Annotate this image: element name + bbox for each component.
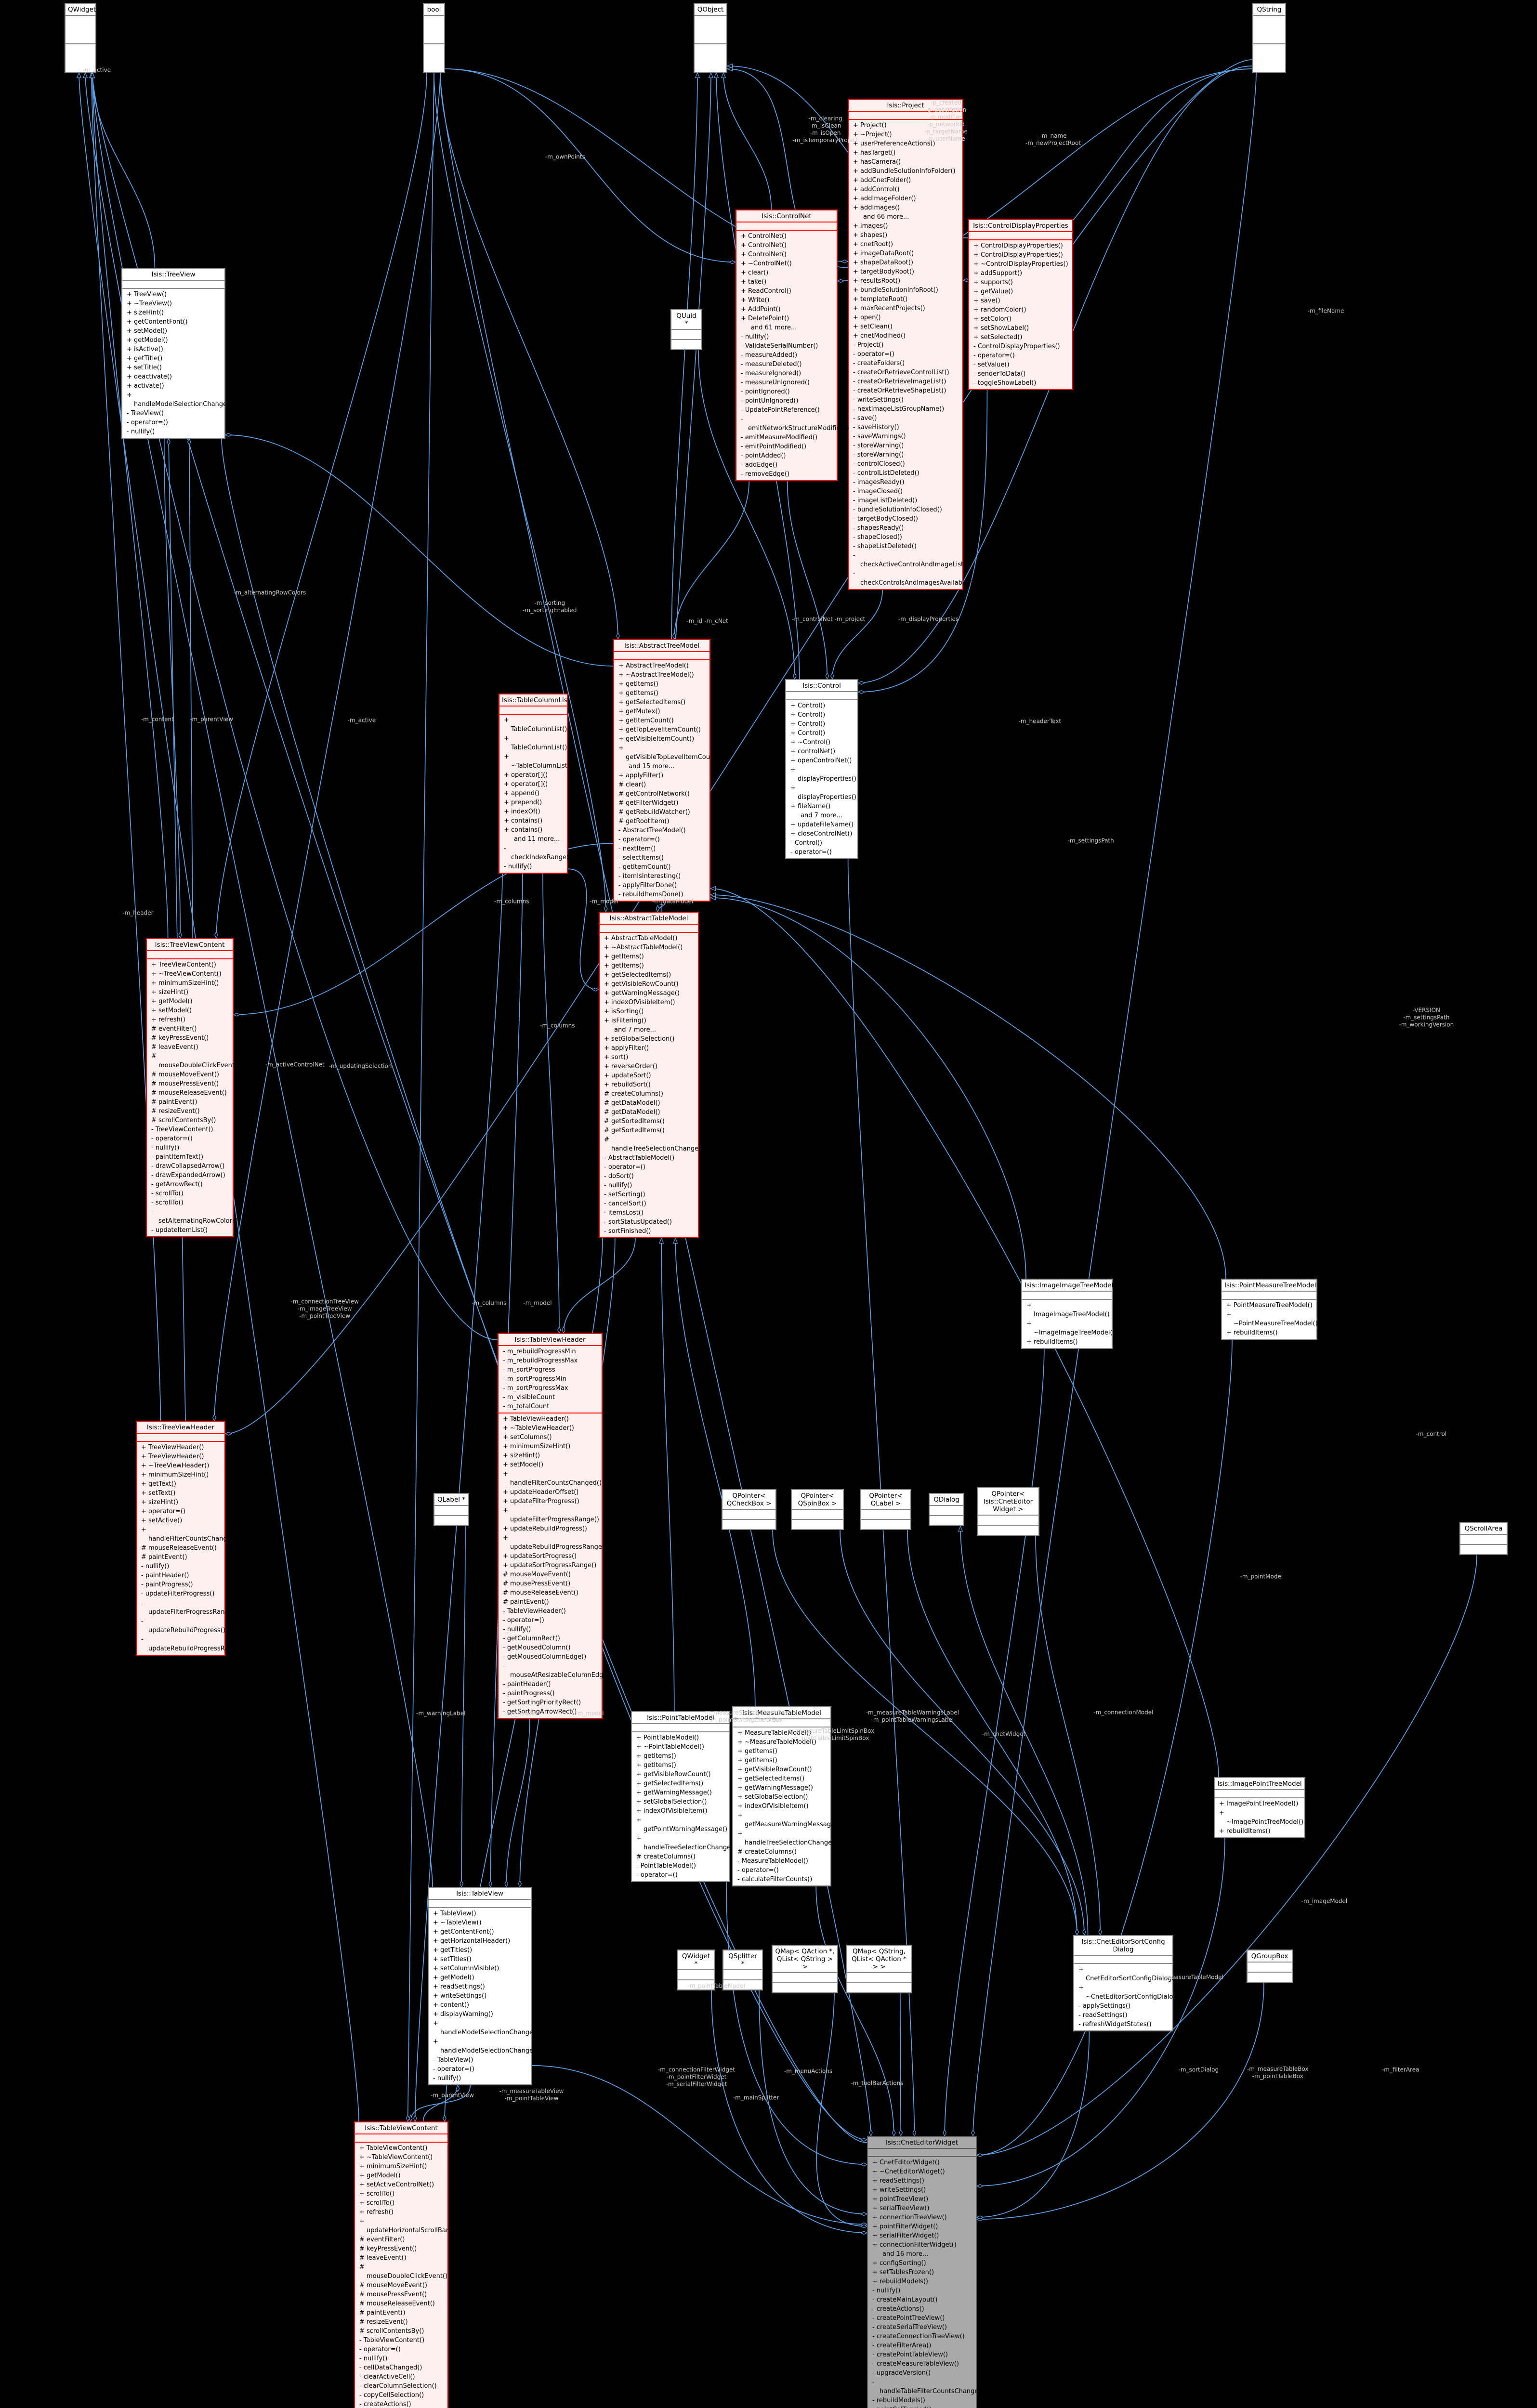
attributes-compartment	[736, 222, 837, 230]
methods-compartment: + Project()+ ~Project()+ userPreferenceA…	[849, 119, 962, 589]
member-row: - nullify()	[122, 427, 224, 436]
edge-label: -m_clearing-m_isClean-m_isOpen-m_isTempo…	[792, 115, 858, 144]
class-title: QDialog	[930, 1494, 963, 1505]
class-title: Isis::TableViewContent	[355, 2122, 447, 2133]
member-row: + bundleSolutionInfoRoot()	[849, 286, 962, 295]
member-row: + getItems()	[614, 680, 709, 689]
edge-label: -m_content	[141, 716, 174, 723]
member-row: # paintEvent()	[355, 2308, 447, 2317]
member-row: - createOrRetrieveShapeList()	[849, 386, 962, 395]
member-row: - operator=()	[733, 1866, 830, 1875]
member-edge	[945, 1349, 1044, 2136]
member-row: + cnetModified()	[849, 331, 962, 340]
member-row: - shapeClosed()	[849, 533, 962, 542]
attributes-compartment	[1248, 1962, 1292, 1972]
member-row: + ReadControl()	[736, 287, 837, 296]
attributes-compartment	[723, 1509, 775, 1519]
edge-label: -m_active	[348, 717, 376, 724]
member-row: # keyPressEvent()	[147, 1034, 233, 1043]
member-row: + addSupport()	[969, 269, 1072, 278]
edge-label: -m_warningLabel	[416, 1710, 465, 1717]
class-title: QString	[1253, 4, 1285, 15]
inheritance-edge	[710, 889, 1219, 1777]
methods-compartment: + TreeViewContent()+ ~TreeViewContent()+…	[147, 958, 233, 1236]
member-row: + setText()	[137, 1489, 224, 1498]
edge-label: -m_mainSplitter	[733, 2094, 779, 2102]
member-row: - checkIndexRange()	[499, 844, 567, 862]
uml-collaboration-diagram: QWidgetboolQObjectQStringIsis::Project+ …	[0, 0, 1537, 2408]
attributes-compartment	[695, 15, 726, 43]
member-row: + AddPoint()	[736, 305, 837, 314]
member-edge	[189, 439, 193, 938]
class-box-qplabel[interactable]: QPointer< QLabel >	[860, 1489, 911, 1530]
member-row: + updateHeaderOffset()	[499, 1488, 602, 1497]
member-row: - pointUnIgnored()	[736, 396, 837, 406]
member-row: - emitMeasureModified()	[736, 433, 837, 442]
attributes-compartment	[1460, 1534, 1507, 1544]
member-row: - setAlternatingRowColors()	[147, 1207, 233, 1226]
member-row: - applyFilterDone()	[614, 881, 709, 890]
member-row: + open()	[849, 313, 962, 322]
member-row: - updateItemList()	[147, 1226, 233, 1235]
member-row: - itemIsInteresting()	[614, 872, 709, 881]
member-row: and 66 more...	[849, 212, 962, 222]
member-row: - nullify()	[355, 2354, 447, 2363]
member-row: - writeSettings()	[849, 395, 962, 405]
member-row: + addBundleSolutionInfoFolder()	[849, 167, 962, 176]
member-row: + TableViewContent()	[355, 2144, 447, 2153]
member-row: + ~AbstractTreeModel()	[614, 670, 709, 680]
class-title: bool	[424, 4, 444, 15]
member-row: + getWarningMessage()	[733, 1783, 830, 1793]
edge-label: -m_dataModel	[652, 898, 693, 905]
methods-compartment	[434, 1515, 468, 1525]
member-row: # resizeEvent()	[355, 2317, 447, 2327]
member-row: - operator=()	[429, 2065, 531, 2074]
member-row: + handleTreeSelectionChanged()	[632, 1834, 729, 1852]
member-row: + ~PointMeasureTreeModel()	[1222, 1310, 1316, 1328]
member-row: - nullify()	[868, 2286, 976, 2295]
member-row: + activate()	[122, 381, 224, 391]
class-title: QGroupBox	[1248, 1950, 1292, 1962]
class-title: Isis::AbstractTableModel	[600, 913, 698, 924]
member-row: # mousePressEvent()	[499, 1579, 602, 1588]
class-box-abstracttablemodel[interactable]: Isis::AbstractTableModel+ AbstractTableM…	[599, 912, 699, 1238]
member-row: + readSettings()	[429, 1982, 531, 1991]
member-row: + ~AbstractTableModel()	[600, 943, 698, 952]
attributes-compartment	[122, 280, 224, 288]
member-row: + connectionTreeView()	[868, 2213, 976, 2222]
class-box-treeviewcontent[interactable]: Isis::TreeViewContent+ TreeViewContent()…	[146, 938, 234, 1237]
member-row: # createColumns()	[632, 1852, 729, 1861]
member-row: + ~TreeViewContent()	[147, 969, 233, 979]
class-box-qpspinbox[interactable]: QPointer< QSpinBox >	[791, 1489, 844, 1530]
member-row: + connectionFilterWidget()	[868, 2240, 976, 2250]
inheritance-edge	[92, 73, 155, 268]
class-box-qdialog[interactable]: QDialog	[929, 1493, 964, 1526]
member-row: - storeWarning()	[849, 450, 962, 459]
member-row: + setActiveControlNet()	[355, 2180, 447, 2189]
attributes-compartment	[773, 1972, 837, 1982]
member-row: # eventFilter()	[355, 2235, 447, 2244]
member-row: + CnetEditorWidget()	[868, 2158, 976, 2167]
class-title: Isis::CnetEditorWidget	[868, 2137, 976, 2148]
edge-label: -m_columns	[494, 898, 529, 905]
member-row: + getItemCount()	[614, 716, 709, 725]
member-row: + getModel()	[147, 997, 233, 1006]
member-row: + rebuildItems()	[1022, 1337, 1112, 1347]
member-row: + rebuildModels()	[868, 2277, 976, 2286]
member-row: - shapesReady()	[849, 523, 962, 533]
member-row: + sizeHint()	[122, 308, 224, 317]
member-row: + getSelectedItems()	[733, 1774, 830, 1783]
class-box-pointmeasuretreemodel[interactable]: Isis::PointMeasureTreeModel+ PointMeasur…	[1221, 1279, 1317, 1340]
member-row: + AbstractTreeModel()	[614, 661, 709, 670]
member-row: + rebuildItems()	[1222, 1328, 1316, 1337]
class-box-tableview[interactable]: Isis::TableView+ TableView()+ ~TableView…	[428, 1887, 532, 2085]
edge-label: -m_measureTableView-m_pointTableView	[499, 2088, 564, 2102]
member-row: + ~ImagePointTreeModel()	[1215, 1808, 1304, 1827]
class-title: Isis::Control	[786, 680, 857, 691]
member-row: - Control()	[786, 838, 857, 848]
edge-label: -VERSION-m_settingsPath-m_workingVersion	[1399, 1007, 1454, 1029]
class-title: QScrollArea	[1460, 1523, 1507, 1534]
class-title: QPointer< QCheckBox >	[723, 1490, 775, 1509]
member-edge	[977, 1555, 1477, 2155]
class-box-quuid[interactable]: QUuid *	[670, 309, 702, 350]
member-row: + setModel()	[122, 327, 224, 336]
member-row: + readSettings()	[868, 2176, 976, 2186]
class-box-bool[interactable]: bool	[423, 3, 445, 73]
methods-compartment	[723, 1519, 775, 1529]
member-row: # clear()	[614, 780, 709, 789]
class-box-controlnet[interactable]: Isis::ControlNet+ ControlNet()+ ControlN…	[736, 209, 838, 481]
member-row: - controlListDeleted()	[849, 469, 962, 478]
class-title: QUuid *	[671, 310, 701, 329]
edge-label: -m_model	[523, 1300, 552, 1307]
edge-label: -m_displayProperties	[898, 616, 959, 623]
member-row: # paintEvent()	[499, 1597, 602, 1607]
methods-compartment	[424, 43, 444, 72]
member-row: + Control()	[786, 729, 857, 738]
member-row: - scrollTo()	[147, 1198, 233, 1207]
member-row: # getDataModel()	[600, 1099, 698, 1108]
attributes-compartment	[1215, 1789, 1304, 1797]
class-box-imagepointtreemodel[interactable]: Isis::ImagePointTreeModel+ ImagePointTre…	[1214, 1777, 1305, 1838]
member-row: - rebuildModels()	[868, 2396, 976, 2405]
member-row: - createOrRetrieveImageList()	[849, 377, 962, 386]
member-row: and 16 more...	[868, 2250, 976, 2259]
methods-compartment	[847, 1982, 911, 1992]
member-row: + imageDataRoot()	[849, 249, 962, 258]
member-row: + displayProperties()	[786, 784, 857, 802]
member-row: - pointAdded()	[736, 451, 837, 460]
attribute-row: - m_totalCount	[499, 1402, 602, 1411]
methods-compartment: + MeasureTableModel()+ ~MeasureTableMode…	[733, 1727, 830, 1885]
member-row: + setColumnVisible()	[429, 1964, 531, 1973]
class-box-qscrollarea[interactable]: QScrollArea	[1459, 1522, 1508, 1555]
methods-compartment: + TableViewHeader()+ ~TableViewHeader()+…	[499, 1413, 602, 1718]
edge-label: -m_parentView	[190, 716, 233, 723]
class-box-tablecolumnlist[interactable]: Isis::TableColumnList+ TableColumnList()…	[499, 694, 568, 874]
class-box-qmapstring[interactable]: QMap< QString, QList< QAction * > >	[846, 1945, 912, 1993]
class-title: Isis::ControlDisplayProperties	[969, 220, 1072, 231]
member-row: - itemsLost()	[600, 1208, 698, 1217]
member-row: - nullify()	[736, 332, 837, 341]
edge-label: -m_controlNet -m_project	[792, 616, 865, 623]
member-row: - createMeasureTableView()	[868, 2359, 976, 2369]
member-row: + getVisibleRowCount()	[632, 1770, 729, 1779]
member-row: # paintEvent()	[147, 1098, 233, 1107]
class-title: QWidget *	[678, 1950, 714, 1969]
member-row: + setSelected()	[969, 333, 1072, 342]
member-row: + rebuildItems()	[1215, 1827, 1304, 1836]
member-row: - nullify()	[147, 1143, 233, 1152]
edge-label: -m_connectionFilterWidget-m_pointFilterW…	[658, 2067, 735, 2088]
edge-label: -m_control	[1416, 1431, 1447, 1438]
attributes-compartment	[499, 706, 567, 714]
member-row: - createSerialTreeView()	[868, 2323, 976, 2332]
member-row: + updateHorizontalScrollBar()	[355, 2217, 447, 2235]
member-edge	[816, 1886, 894, 2136]
member-row: - shapeListDeleted()	[849, 542, 962, 551]
member-row: # resizeEvent()	[147, 1107, 233, 1116]
member-row: + isSorting()	[600, 1007, 698, 1016]
member-row: and 7 more...	[786, 811, 857, 820]
class-box-cdp[interactable]: Isis::ControlDisplayProperties+ ControlD…	[968, 219, 1073, 390]
inheritance-edge	[675, 1238, 755, 1706]
member-row: + minimumSizeHint()	[499, 1442, 602, 1451]
member-row: + setShowLabel()	[969, 324, 1072, 333]
class-box-qpcnet[interactable]: QPointer< Isis::CnetEditor Widget >	[977, 1487, 1039, 1536]
member-row: + minimumSizeHint()	[147, 979, 233, 988]
member-row: # getSortedItems()	[600, 1126, 698, 1135]
member-row: + getPointWarningMessage()	[632, 1816, 729, 1834]
member-row: + updateFilterProgress()	[499, 1497, 602, 1506]
member-row: + deactivate()	[122, 372, 224, 381]
member-row: + templateRoot()	[849, 295, 962, 304]
class-box-tableviewheader[interactable]: Isis::TableViewHeader- m_rebuildProgress…	[498, 1333, 603, 1719]
member-row: + AbstractTableModel()	[600, 934, 698, 943]
member-row: + pointFilterWidget()	[868, 2222, 976, 2231]
class-box-abstracttreemodel[interactable]: Isis::AbstractTreeModel+ AbstractTreeMod…	[613, 639, 710, 902]
member-row: + hasTarget()	[849, 148, 962, 157]
methods-compartment: + PointMeasureTreeModel()+ ~PointMeasure…	[1222, 1299, 1316, 1339]
member-row: - applySettings()	[1074, 2002, 1172, 2011]
class-title: Isis::ImageImageTreeModel	[1022, 1280, 1112, 1291]
member-row: + writeSettings()	[868, 2186, 976, 2195]
member-row: + refresh()	[147, 1015, 233, 1024]
member-row: - createPointTreeView()	[868, 2314, 976, 2323]
member-row: + openControlNet()	[786, 756, 857, 765]
member-row: # handleTreeSelectionChanged()	[600, 1135, 698, 1153]
edge-label: -m_active	[83, 67, 111, 74]
class-box-treeview[interactable]: Isis::TreeView+ TreeView()+ ~TreeView()+…	[121, 268, 225, 439]
member-row: - setValue()	[969, 360, 1072, 369]
member-row: - selectItems()	[614, 853, 709, 863]
member-row: - sortFinished()	[600, 1227, 698, 1236]
member-row: - getMousedColumnEdge()	[499, 1652, 602, 1662]
member-edge	[440, 73, 618, 639]
member-row: + contains()	[499, 825, 567, 835]
edge-label: -m_parentView	[431, 2092, 474, 2099]
edge-label: -m_name-m_newProjectRoot	[1025, 132, 1081, 147]
member-row: - operator=()	[849, 350, 962, 359]
member-row: + ~CnetEditorWidget()	[868, 2167, 976, 2176]
class-box-qmapaction[interactable]: QMap< QAction *, QList< QString > >	[772, 1945, 838, 1993]
member-row: + indexOfVisibleItem()	[632, 1806, 729, 1816]
member-row: + minimumSizeHint()	[137, 1470, 224, 1479]
edge-label: -m_toolBarActions	[851, 2080, 903, 2087]
edge-label: -m_header	[122, 910, 153, 917]
class-box-qpcheckbox[interactable]: QPointer< QCheckBox >	[722, 1489, 776, 1530]
member-row: + refresh()	[355, 2208, 447, 2217]
member-row: - clearActiveCell()	[355, 2372, 447, 2382]
class-box-qlabelptr[interactable]: QLabel *	[434, 1493, 469, 1526]
attributes-compartment	[1074, 1955, 1172, 1963]
class-box-qwidget[interactable]: QWidget	[65, 3, 96, 73]
member-row: + ControlNet()	[736, 232, 837, 241]
member-row: - pointColToggled()	[868, 2405, 976, 2408]
class-title: Isis::TableViewHeader	[499, 1334, 602, 1345]
member-row: + getTitle()	[122, 354, 224, 363]
inheritance-edge	[710, 898, 1026, 1279]
class-title: QPointer< QLabel >	[861, 1490, 910, 1509]
member-row: - createActions()	[868, 2304, 976, 2314]
member-row: - updateRebuildProgressRange()	[137, 1635, 224, 1653]
member-row: + indexOfVisibleItem()	[733, 1802, 830, 1811]
member-row: + ~TableColumnList()	[499, 752, 567, 771]
member-row: + updateRebuildProgressRange()	[499, 1533, 602, 1552]
member-row: - senderToData()	[969, 369, 1072, 379]
class-title: QWidget	[66, 4, 95, 15]
member-row: + handleModelSelectionChanged()	[122, 391, 224, 409]
member-row: + getModel()	[429, 1973, 531, 1982]
member-row: + take()	[736, 277, 837, 287]
member-row: # getControlNetwork()	[614, 789, 709, 798]
attributes-compartment	[868, 2148, 976, 2156]
member-row: and 15 more...	[614, 762, 709, 771]
class-box-qgroupbox[interactable]: QGroupBox	[1247, 1950, 1293, 1983]
member-edge	[711, 1990, 867, 2233]
member-row: - updateFilterProgress()	[137, 1589, 224, 1598]
member-row: - UpdatePointReference()	[736, 406, 837, 415]
member-row: + ControlNet()	[736, 241, 837, 250]
member-row: + prepend()	[499, 798, 567, 807]
methods-compartment: + ControlDisplayProperties()+ ControlDis…	[969, 239, 1072, 389]
member-row: + reverseOrder()	[600, 1062, 698, 1071]
member-row: + updateSortProgress()	[499, 1552, 602, 1561]
edge-label: -m_headerText	[1019, 718, 1062, 725]
inheritance-edge	[710, 895, 1226, 1279]
class-box-cneteditorwidget[interactable]: Isis::CnetEditorWidget+ CnetEditorWidget…	[867, 2136, 977, 2408]
class-box-project[interactable]: Isis::Project+ Project()+ ~Project()+ us…	[848, 99, 963, 590]
member-row: - getItemCount()	[614, 863, 709, 872]
inheritance-edge	[661, 1238, 674, 1711]
member-row: + getItems()	[600, 961, 698, 970]
member-row: + setGlobalSelection()	[600, 1034, 698, 1044]
member-row: + handleFilterCountsChanged()	[137, 1525, 224, 1544]
attributes-compartment	[930, 1505, 963, 1515]
methods-compartment: + Control()+ Control()+ Control()+ Contr…	[786, 699, 857, 858]
member-row: and 11 more...	[499, 835, 567, 844]
member-edge	[408, 73, 434, 2121]
member-row: - nullify()	[429, 2074, 531, 2083]
member-row: - cellDataChanged()	[355, 2363, 447, 2372]
member-row: - createOrRetrieveControlList()	[849, 368, 962, 377]
member-row: - nullify()	[600, 1181, 698, 1190]
attributes-compartment	[1022, 1291, 1112, 1299]
class-box-treeviewheader[interactable]: Isis::TreeViewHeader+ TreeViewHeader()+ …	[136, 1421, 225, 1656]
member-row: + shapes()	[849, 231, 962, 240]
member-row: - paintProgress()	[137, 1580, 224, 1589]
member-row: - AbstractTableModel()	[600, 1153, 698, 1163]
class-box-qstring[interactable]: QString	[1252, 3, 1286, 73]
member-edge	[214, 73, 440, 1421]
member-row: + setClean()	[849, 322, 962, 331]
member-edge	[411, 2085, 471, 2121]
member-row: - paintHeader()	[499, 1680, 602, 1689]
methods-compartment	[695, 43, 726, 72]
methods-compartment: + ImagePointTreeModel()+ ~ImagePointTree…	[1215, 1797, 1304, 1837]
member-row: - drawCollapsedArrow()	[147, 1162, 233, 1171]
attributes-compartment	[355, 2133, 447, 2142]
member-row: + ImagePointTreeModel()	[1215, 1799, 1304, 1808]
member-row: + serialTreeView()	[868, 2204, 976, 2213]
member-row: + hasCamera()	[849, 157, 962, 167]
member-row: - TreeView()	[122, 409, 224, 418]
member-row: - nextImageListGroupName()	[849, 405, 962, 414]
member-row: + DeletePoint()	[736, 314, 837, 323]
member-row: - imageClosed()	[849, 487, 962, 496]
member-row: - saveWarnings()	[849, 432, 962, 441]
member-row: # getSortedItems()	[600, 1117, 698, 1126]
member-row: - operator=()	[499, 1616, 602, 1625]
class-box-control[interactable]: Isis::Control+ Control()+ Control()+ Con…	[785, 679, 858, 859]
member-row: + images()	[849, 222, 962, 231]
member-row: - AbstractTreeModel()	[614, 826, 709, 835]
edge-label: -m_measureTableBox-m_pointTableBox	[1247, 2066, 1309, 2080]
member-row: + setTitle()	[122, 363, 224, 372]
member-row: + getText()	[137, 1479, 224, 1489]
class-box-pointtablemodel[interactable]: Isis::PointTableModel+ PointTableModel()…	[631, 1711, 730, 1882]
member-row: + TreeView()	[122, 290, 224, 299]
member-row: + addCnetFolder()	[849, 176, 962, 185]
member-row: + getHorizontalHeader()	[429, 1937, 531, 1946]
methods-compartment	[1248, 1972, 1292, 1982]
member-row: - emitNetworkStructureModified()	[736, 415, 837, 433]
member-row: - targetBodyClosed()	[849, 514, 962, 523]
member-row: # mouseReleaseEvent()	[499, 1588, 602, 1597]
member-row: + closeControlNet()	[786, 829, 857, 838]
member-row: # createColumns()	[733, 1847, 830, 1857]
member-row: + addImages()	[849, 203, 962, 212]
member-row: - ValidateSerialNumber()	[736, 341, 837, 351]
member-row: + save()	[969, 296, 1072, 305]
member-row: + setModel()	[147, 1006, 233, 1015]
class-box-qobject[interactable]: QObject	[694, 3, 727, 73]
member-row: + getWarningMessage()	[600, 989, 698, 998]
inheritance-edge	[723, 73, 771, 209]
class-box-tableviewcontent[interactable]: Isis::TableViewContent+ TableViewContent…	[354, 2121, 448, 2408]
class-box-sortconfigdialog[interactable]: Isis::CnetEditorSortConfig Dialog+ CnetE…	[1073, 1935, 1173, 2031]
member-row: + getSelectedItems()	[600, 970, 698, 980]
class-box-imageimagetreemodel[interactable]: Isis::ImageImageTreeModel+ ImageImageTre…	[1021, 1279, 1113, 1349]
member-row: # mouseReleaseEvent()	[355, 2299, 447, 2308]
methods-compartment	[978, 1525, 1038, 1535]
member-row: + contains()	[499, 816, 567, 825]
class-title: Isis::TableColumnList	[499, 694, 567, 706]
